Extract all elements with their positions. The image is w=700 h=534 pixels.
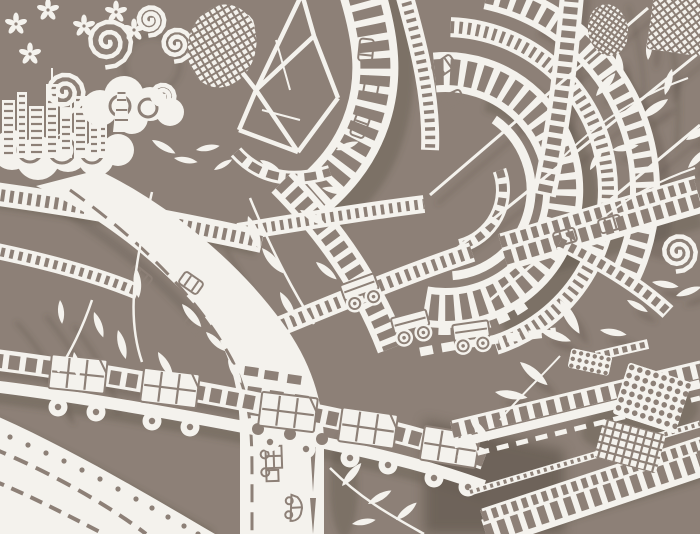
ramp-dot xyxy=(25,442,30,447)
ramp-dot xyxy=(43,450,48,455)
wheel xyxy=(425,469,444,488)
ramp-dot xyxy=(165,514,170,519)
wheel xyxy=(143,412,162,431)
ramp-dot xyxy=(79,467,84,472)
ramp-dot xyxy=(61,458,66,463)
paper-cut-scene xyxy=(0,0,700,534)
ramp-dot xyxy=(115,486,120,491)
wheel xyxy=(341,449,360,468)
wheel xyxy=(297,440,316,459)
building xyxy=(17,92,27,158)
ramp-dot xyxy=(181,523,186,528)
cart-truck xyxy=(258,392,318,433)
wheel xyxy=(261,433,280,452)
wheel xyxy=(49,398,68,417)
building xyxy=(29,106,44,158)
building xyxy=(2,100,15,158)
wheel xyxy=(181,418,200,437)
photo-paper-cut-artwork xyxy=(0,0,700,534)
wheel xyxy=(379,456,398,475)
wheel-hole xyxy=(316,433,328,445)
wheel xyxy=(87,403,106,422)
ramp-dot xyxy=(97,476,102,481)
ramp-dot xyxy=(149,505,154,510)
ramp-dot xyxy=(133,496,138,501)
ramp-dot xyxy=(7,434,12,439)
cart-truck xyxy=(338,407,398,448)
